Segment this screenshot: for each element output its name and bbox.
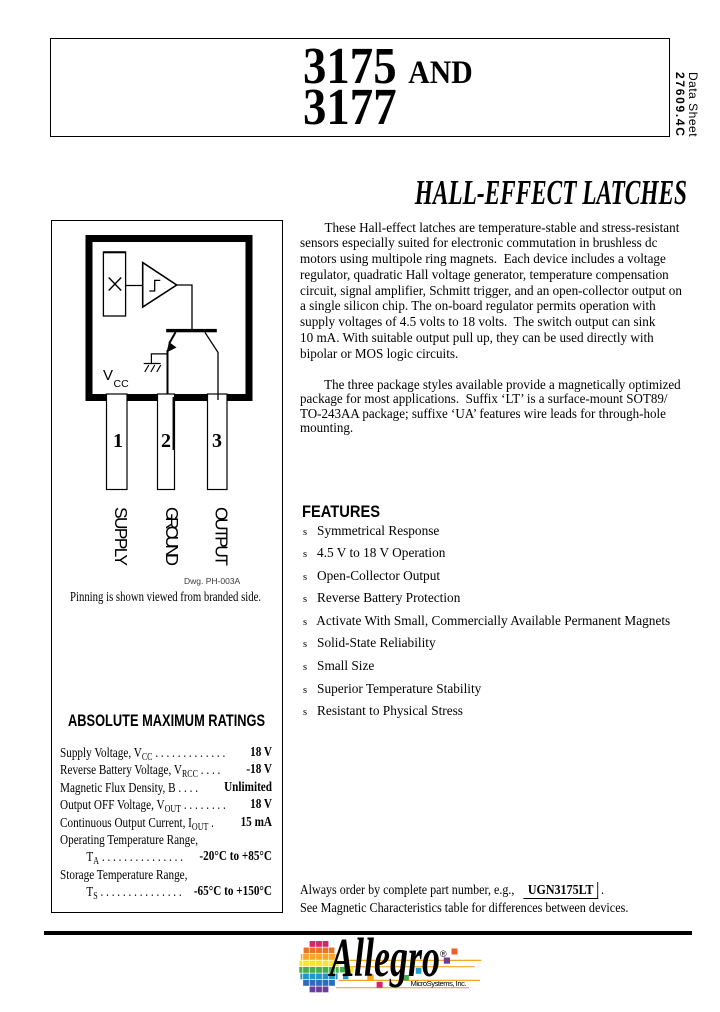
svg-text:1: 1 <box>113 430 123 452</box>
svg-text:OUTPUT: OUTPUT <box>212 507 232 566</box>
svg-text:Dwg. PH-003A: Dwg. PH-003A <box>184 576 241 586</box>
svg-text:2: 2 <box>161 430 171 452</box>
svg-text:CC: CC <box>114 378 130 390</box>
svg-text:MicroSystems, Inc.: MicroSystems, Inc. <box>411 979 467 988</box>
svg-text:GROUND: GROUND <box>162 507 182 566</box>
svg-text:SUPPLY: SUPPLY <box>111 507 131 566</box>
svg-text:3: 3 <box>212 430 222 452</box>
svg-text:V: V <box>103 367 113 384</box>
svg-text:®: ® <box>440 949 447 959</box>
